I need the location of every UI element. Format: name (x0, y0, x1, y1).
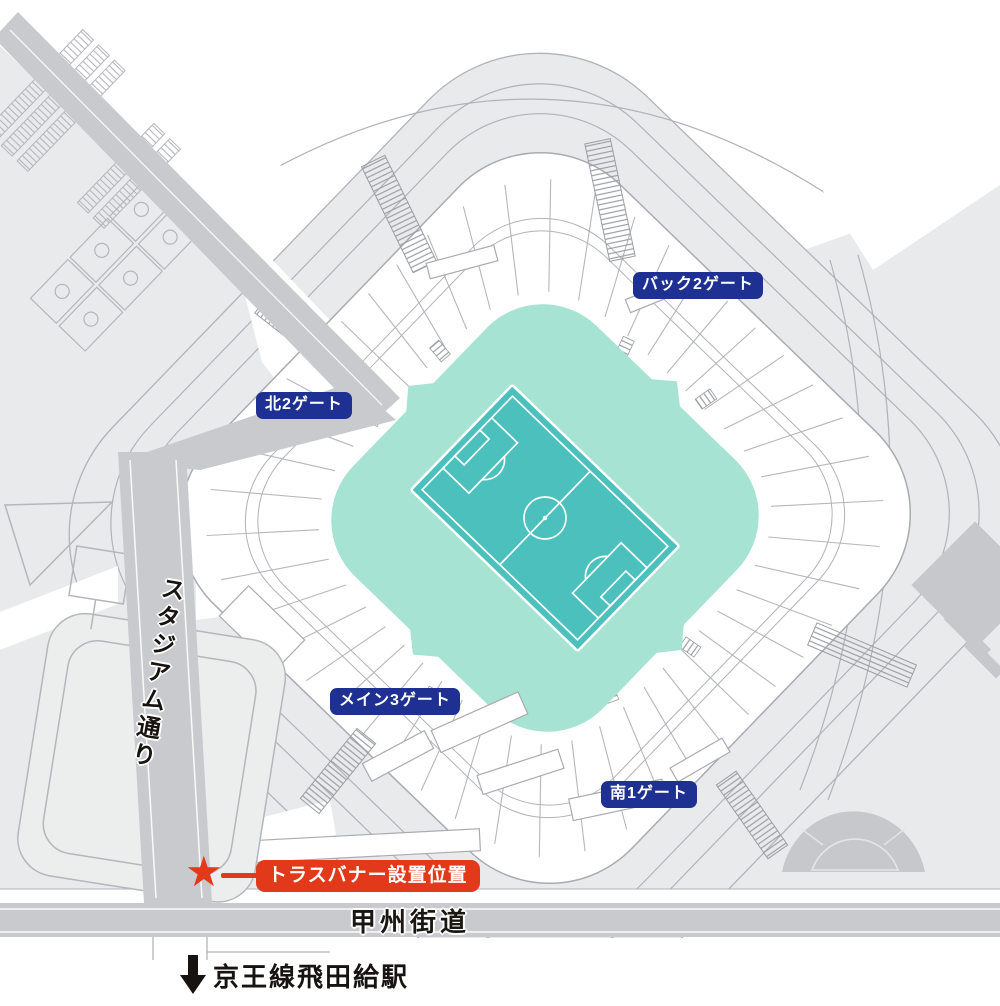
stadium-map-drawing (0, 0, 1000, 1006)
down-arrow-icon (180, 955, 206, 995)
banner-pointer-line (221, 873, 259, 878)
station-label: 京王線飛田給駅 (213, 957, 409, 994)
gate-badge-main3: メイン3ゲート (330, 688, 460, 715)
gate-badge-north2: 北2ゲート (256, 392, 352, 419)
road-label-koshu-kaido: 甲州街道 (350, 902, 470, 939)
gate-badge-south1: 南1ゲート (601, 781, 697, 808)
truss-banner-badge: トラスバナー設置位置 (256, 860, 480, 892)
gate-badge-back2: バック2ゲート (633, 272, 763, 299)
stadium-map: 北2ゲート バック2ゲート メイン3ゲート 南1ゲート ★ トラスバナー設置位置… (0, 0, 1000, 1006)
banner-star-icon: ★ (185, 851, 223, 893)
station-label-group: 京王線飛田給駅 (180, 955, 409, 995)
